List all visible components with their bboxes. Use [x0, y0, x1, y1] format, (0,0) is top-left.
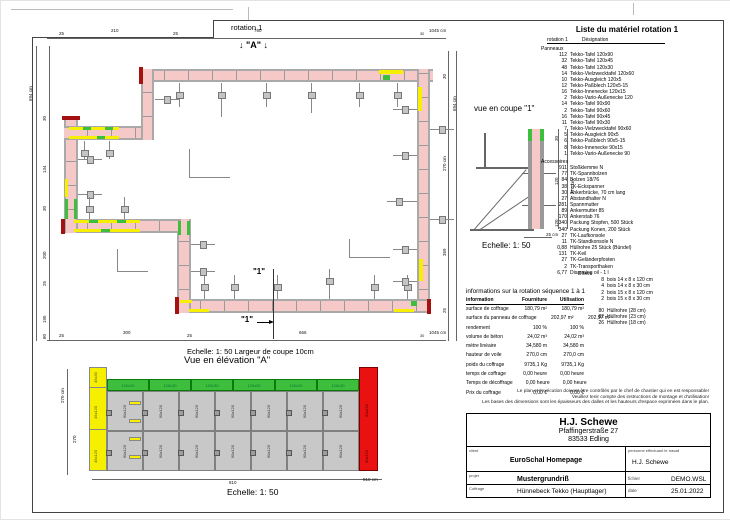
- company-address-2: 83533 Edling: [467, 436, 710, 444]
- elevation-gray-panel: 90x120: [179, 391, 215, 431]
- info-fourniture-value: 0,00 heure: [510, 370, 547, 379]
- info-label: surface de coffrage: [466, 305, 510, 314]
- panel-mark-green: [65, 199, 68, 219]
- panel-label: 90x120: [267, 404, 272, 417]
- rotation-info-table: informations sur la rotation séquence 1 …: [466, 288, 584, 398]
- tie-symbol: [397, 83, 398, 107]
- dim-label: 666: [299, 331, 307, 336]
- info-row: Temps de décoffrage0,00 heure0,00 heure: [466, 379, 584, 388]
- material-list-body: Panneaux112Tekko-Tafel 120x9032Tekko-Taf…: [541, 46, 713, 276]
- worker-value: H.J. Schewe: [632, 459, 710, 466]
- panel-mark-yellow: [379, 70, 403, 74]
- info-table-body: surface de coffrage180,79 m²180,79 m²sur…: [466, 305, 584, 398]
- panel-label: 90x120: [339, 404, 344, 417]
- elevation-green-panel: 120x30: [275, 379, 317, 391]
- panel-mark-green: [101, 229, 110, 232]
- tie-symbol: [124, 197, 125, 219]
- material-designation: bois 15 x 8 x 30 cm: [607, 296, 650, 302]
- tie-symbol: [387, 201, 417, 202]
- dim-label: 200: [43, 251, 48, 259]
- elevation-gray-panel: 90x120: [179, 431, 215, 471]
- drawing-sheet: rotation 1 ↓ "A" ↓ 25 210 25 760 30 1045…: [0, 0, 730, 520]
- info-utilisation-value: 0,00 heure: [550, 379, 587, 388]
- info-row: surface du panneau de coffrage202,97 m²2…: [466, 314, 584, 323]
- panel-label: 120x30: [163, 383, 176, 388]
- title-block-row-project: projet Mustergrundriß fichier DEMO.WSL: [467, 472, 710, 485]
- info-label: mètre linéaire: [466, 342, 510, 351]
- panel-label: 120x30: [331, 383, 344, 388]
- formwork-cell: Coffrage Hünnebeck Tekko (Hauptlager): [467, 485, 626, 497]
- info-col-fourniture: Fourniture: [510, 297, 547, 303]
- info-fourniture-value: 0,00 heure: [513, 379, 550, 388]
- panel-label: 45x120: [94, 450, 98, 463]
- elevation-yellow-column: [89, 367, 107, 471]
- tie-symbol: [191, 244, 215, 245]
- client-label: client: [469, 448, 478, 453]
- info-row: rendement100 %100 %: [466, 324, 584, 333]
- stop-end-cap: [139, 67, 143, 84]
- info-utilisation-value: 270,0 cm: [547, 351, 584, 360]
- elevation-scale: Echelle: 1: 50: [227, 487, 279, 497]
- tie-symbol: [311, 83, 312, 113]
- elevation-panel-grid: 90x12090x12090x12090x12090x12090x12090x1…: [107, 391, 359, 471]
- client-value: EuroSchal Homepage: [467, 457, 625, 464]
- info-utilisation-value: 180,79 m²: [547, 305, 584, 314]
- panel-mark-yellow: [180, 300, 192, 303]
- dim-label: 30: [43, 206, 48, 211]
- stop-end-cap: [61, 219, 65, 234]
- panel-mark-green: [411, 301, 417, 306]
- dim-line-right: [448, 51, 449, 341]
- dim-label: 80: [43, 334, 48, 339]
- dim-label: 25: [443, 308, 448, 313]
- dim-label: 210: [111, 29, 119, 34]
- panel-mark-green: [187, 221, 190, 235]
- dim-line-elevation-bottom: [92, 479, 382, 480]
- elevation-gray-panel: 90x120: [251, 431, 287, 471]
- corner-brace-symbol: [349, 239, 390, 258]
- panel-mark-green: [117, 220, 126, 223]
- wall-section: [532, 129, 540, 229]
- file-value: DEMO.WSL: [671, 476, 710, 483]
- panel-label: 90x120: [365, 404, 369, 417]
- tie-symbol: [393, 109, 417, 110]
- dim-label: 810: [229, 481, 237, 486]
- elevation-gray-panel: 90x120: [287, 391, 323, 431]
- tie-symbol: [430, 129, 454, 130]
- dim-total-label: 1045 cm: [429, 29, 446, 34]
- frame-step: [213, 20, 214, 38]
- tie-symbol: [191, 271, 215, 272]
- panel-mark-yellow: [69, 136, 119, 139]
- stop-end-cap: [427, 299, 431, 314]
- title-block-row-formwork: Coffrage Hünnebeck Tekko (Hauptlager) da…: [467, 485, 710, 497]
- material-list-title: Liste du matériel rotation 1: [541, 25, 713, 34]
- panel-mark-green: [528, 129, 532, 141]
- elevation-title: Vue en élévation "A": [184, 355, 270, 366]
- tie-bar-yellow: [129, 419, 141, 423]
- elevation-gray-panel: 90x120: [287, 431, 323, 471]
- elevation-green-panel: 120x30: [317, 379, 359, 391]
- info-utilisation-value: 34,580 m: [547, 342, 584, 351]
- dim-line-bottom: [47, 340, 446, 341]
- info-fourniture-value: 9735,1 Kg: [510, 361, 547, 370]
- material-qty: 6,77: [541, 270, 567, 276]
- elevation-drawing: 45x30 45x120 45x120 120x30120x30120x3012…: [89, 367, 389, 479]
- cut-marker-1-top: "1": [253, 267, 265, 276]
- info-label: hauteur de voile: [466, 351, 510, 360]
- panel-joint: [89, 387, 107, 388]
- project-label: projet: [469, 473, 479, 478]
- panel-label: 90x120: [303, 444, 308, 457]
- dim-label: 270 cm: [443, 156, 448, 171]
- tie-symbol: [277, 275, 278, 299]
- info-row: mètre linéaire34,580 m34,580 m: [466, 342, 584, 351]
- info-label: surface du panneau de coffrage: [466, 314, 537, 323]
- panel-label: 120x30: [205, 383, 218, 388]
- info-fourniture-value: 24,02 m³: [510, 333, 547, 342]
- tie-symbol: [329, 269, 330, 299]
- dim-label: 30: [420, 33, 424, 37]
- corner-brace-symbol: [117, 249, 148, 272]
- panel-label: 90x120: [195, 404, 200, 417]
- tie-symbol: [89, 197, 90, 219]
- fold-mark: [633, 3, 634, 15]
- info-label: volume de béton: [466, 333, 510, 342]
- panel-label: 90x120: [123, 444, 128, 457]
- info-label: Temps de décoffrage: [466, 379, 513, 388]
- tie-symbol: [359, 83, 360, 107]
- elevation-gray-panel: 90x120: [215, 431, 251, 471]
- company-block: H.J. Schewe Pfaffingerstraße 27 83533 Ed…: [467, 414, 710, 447]
- dim-label: 30: [420, 335, 424, 339]
- tie-symbol: [155, 99, 179, 100]
- elevation-gray-panel: 90x120: [323, 431, 359, 471]
- info-utilisation-value: 24,02 m³: [547, 333, 584, 342]
- dim-label: 369: [443, 248, 448, 256]
- dim-line-left: [49, 46, 50, 341]
- dim-label: 270: [73, 435, 78, 443]
- panel-mark-green: [178, 221, 181, 235]
- panel-mark-green: [83, 127, 91, 130]
- project-cell: projet Mustergrundriß: [467, 472, 626, 484]
- info-row: temps de coffrage0,00 heure0,00 heure: [466, 370, 584, 379]
- panel-mark-yellow: [74, 220, 140, 223]
- dim-total-label: 810 cm: [363, 478, 378, 483]
- panel-label: 90x120: [339, 444, 344, 457]
- info-table-title: informations sur la rotation séquence 1 …: [466, 288, 584, 295]
- panel-label: 90x120: [267, 444, 272, 457]
- company-name: H.J. Schewe: [467, 417, 710, 428]
- dim-total-label: 694 cm: [29, 86, 34, 101]
- tie-symbol: [78, 159, 102, 160]
- tie-symbol: [266, 83, 267, 107]
- section-title: vue en coupe "1": [474, 104, 534, 113]
- info-fourniture-value: 100 %: [510, 324, 547, 333]
- panel-mark-green: [89, 220, 98, 223]
- title-block: H.J. Schewe Pfaffingerstraße 27 83533 Ed…: [466, 413, 711, 498]
- info-row: surface de coffrage180,79 m²180,79 m²: [466, 305, 584, 314]
- panel-mark-yellow: [189, 309, 209, 312]
- panel-label: 90x120: [159, 404, 164, 417]
- panel-label: 90x120: [195, 444, 200, 457]
- panel-label: 90x120: [123, 404, 128, 417]
- title-block-row-client: client EuroSchal Homepage personne effec…: [467, 447, 710, 472]
- info-label: temps de coffrage: [466, 370, 510, 379]
- material-designation: Tekko-Vario-Außenecke 90: [570, 151, 630, 157]
- info-utilisation-value: 100 %: [547, 324, 584, 333]
- info-utilisation-value: 0,00 heure: [547, 370, 584, 379]
- dim-label: 30: [43, 116, 48, 121]
- dim-total-label: 1045 cm: [429, 331, 446, 336]
- dim-line-right-total: [456, 51, 457, 341]
- tie-bar-yellow: [129, 455, 141, 459]
- tie-symbol: [204, 275, 205, 299]
- cut-marker-1-bottom: "1": [241, 315, 253, 324]
- panel-mark-yellow: [418, 87, 422, 111]
- dim-label: 25: [173, 32, 178, 37]
- material-list-col2: Désignation: [582, 37, 608, 43]
- plan-wall-bottom: [177, 299, 430, 313]
- info-col-label: information: [466, 297, 510, 303]
- material-designation: Hüllrohre (18 cm): [607, 320, 646, 326]
- dim-label: 300: [123, 331, 131, 336]
- dim-label: 25: [43, 281, 48, 286]
- cut-arrow-line: [257, 322, 269, 323]
- worker-cell: personne effectuant le travail H.J. Sche…: [626, 447, 710, 471]
- info-utilisation-value: 202,97 m²: [574, 314, 611, 323]
- panel-label: 120x30: [247, 383, 260, 388]
- disclaimer-text: Le plan et l'exécution doivent être cont…: [381, 389, 709, 406]
- panel-label: 45x120: [94, 406, 98, 419]
- file-label: fichier: [628, 476, 640, 481]
- panel-label: 45x30: [94, 372, 98, 383]
- tie-symbol: [221, 83, 222, 117]
- info-label: poids du coffrage: [466, 361, 510, 370]
- dim-label: 760: [254, 29, 262, 34]
- panel-mark-green: [74, 199, 77, 219]
- frame-right: [723, 20, 724, 513]
- stop-end-cap: [175, 297, 179, 314]
- diagonal-brace: [474, 169, 527, 229]
- section-a-marker: ↓ "A" ↓: [239, 40, 268, 50]
- material-row: 1Tekko-Vario-Außenecke 90: [541, 151, 713, 157]
- material-qty: 1: [541, 151, 567, 157]
- company-address-1: Pfaffingerstraße 27: [467, 428, 710, 436]
- dim-line-elevation-left: [67, 369, 68, 475]
- frame-bottom: [32, 512, 724, 513]
- elevation-gray-panel: 90x120: [215, 391, 251, 431]
- disclaimer-line: Les bases des dimensions sont les épaiss…: [381, 400, 709, 406]
- tie-symbol: [393, 249, 417, 250]
- elevation-green-panel: 120x30: [233, 379, 275, 391]
- dim-label: 30: [443, 74, 448, 79]
- info-utilisation-value: 9735,1 Kg: [547, 361, 584, 370]
- panel-label: 90x120: [231, 404, 236, 417]
- material-list: Liste du matériel rotation 1 rotation 1 …: [541, 25, 713, 276]
- date-label: date: [628, 488, 637, 493]
- info-row: poids du coffrage9735,1 Kg9735,1 Kg: [466, 361, 584, 370]
- fold-mark: [11, 9, 233, 10]
- panel-label: 90x120: [365, 450, 369, 463]
- tie-symbol: [78, 194, 102, 195]
- file-cell: fichier DEMO.WSL: [626, 472, 710, 484]
- material-list-header: rotation 1 Désignation: [547, 37, 665, 44]
- dim-line-left-total: [36, 46, 37, 341]
- platform-line: [476, 167, 528, 169]
- client-cell: client EuroSchal Homepage: [467, 447, 626, 471]
- info-label: rendement: [466, 324, 510, 333]
- cut-line-1: [273, 269, 274, 339]
- elevation-green-panel: 120x30: [149, 379, 191, 391]
- date-cell: date 25.01.2022: [626, 485, 710, 497]
- section-scale: Echelle: 1: 50: [482, 241, 530, 250]
- panel-label: 120x30: [121, 383, 134, 388]
- tie-bar-yellow: [129, 401, 141, 405]
- elevation-gray-panel: 90x120: [251, 391, 287, 431]
- panel-joint: [89, 429, 107, 430]
- info-row: volume de béton24,02 m³24,02 m³: [466, 333, 584, 342]
- tie-symbol: [84, 141, 85, 159]
- info-fourniture-value: 202,97 m²: [537, 314, 574, 323]
- panel-label: 90x120: [231, 444, 236, 457]
- panel-mark-yellow: [65, 179, 68, 197]
- worker-label: personne effectuant le travail: [628, 448, 679, 453]
- info-fourniture-value: 180,79 m²: [510, 305, 547, 314]
- dim-label: 25: [59, 32, 64, 37]
- dim-label: 134: [43, 165, 48, 173]
- panel-mark-green: [383, 75, 390, 80]
- dim-label: 195: [43, 315, 48, 323]
- tie-symbol: [234, 275, 235, 299]
- info-row: hauteur de voile270,0 cm270,0 cm: [466, 351, 584, 360]
- stop-end-cap: [62, 116, 80, 120]
- tie-symbol: [393, 155, 417, 156]
- corner-brace-symbol: [189, 149, 230, 178]
- panel-mark-yellow: [394, 309, 414, 312]
- formwork-label: Coffrage: [469, 486, 484, 491]
- cut-arrow-icon: [269, 320, 274, 324]
- panel-label: 90x120: [303, 404, 308, 417]
- project-value: Mustergrundriß: [517, 476, 625, 483]
- elevation-gray-panel: 90x120: [143, 431, 179, 471]
- tie-symbol: [179, 83, 180, 107]
- dim-label: 25: [59, 334, 64, 339]
- dim-total-label: 270 cm: [61, 388, 66, 403]
- elevation-gray-panel: 90x120: [323, 391, 359, 431]
- info-fourniture-value: 270,0 cm: [510, 351, 547, 360]
- panel-mark-yellow: [419, 259, 423, 281]
- guardrail-post: [484, 133, 486, 169]
- frame-left: [32, 37, 33, 513]
- dim-line-top: [47, 38, 446, 39]
- elevation-green-panel: 120x30: [107, 379, 149, 391]
- ground-line: [470, 229, 534, 231]
- dim-label: 25: [187, 334, 192, 339]
- elevation-green-panel: 120x30: [191, 379, 233, 391]
- dim-total-label: 694 cm: [453, 96, 458, 111]
- frame-top-right: [213, 20, 724, 21]
- info-fourniture-value: 34,580 m: [510, 342, 547, 351]
- tie-bar-yellow: [129, 437, 141, 441]
- elevation-green-row: 120x30120x30120x30120x30120x30120x30: [107, 379, 359, 391]
- elevation-gray-panel: 90x120: [107, 391, 143, 431]
- tie-symbol: [430, 219, 454, 220]
- tie-symbol: [393, 281, 417, 282]
- info-col-utilisation: Utilisation: [547, 297, 584, 303]
- tie-symbol: [109, 141, 110, 159]
- elevation-gray-panel: 90x120: [143, 391, 179, 431]
- fold-mark: [248, 7, 249, 20]
- material-list-col1: rotation 1: [547, 37, 568, 43]
- panel-mark-green: [97, 136, 105, 139]
- tie-symbol: [374, 275, 375, 299]
- panel-label: 90x120: [159, 444, 164, 457]
- formwork-value: Hünnebeck Tekko (Hauptlager): [517, 488, 625, 495]
- info-table-header: information Fourniture Utilisation: [466, 297, 584, 305]
- panel-mark-green: [105, 127, 113, 130]
- date-value: 25.01.2022: [671, 488, 710, 495]
- panel-label: 120x30: [289, 383, 302, 388]
